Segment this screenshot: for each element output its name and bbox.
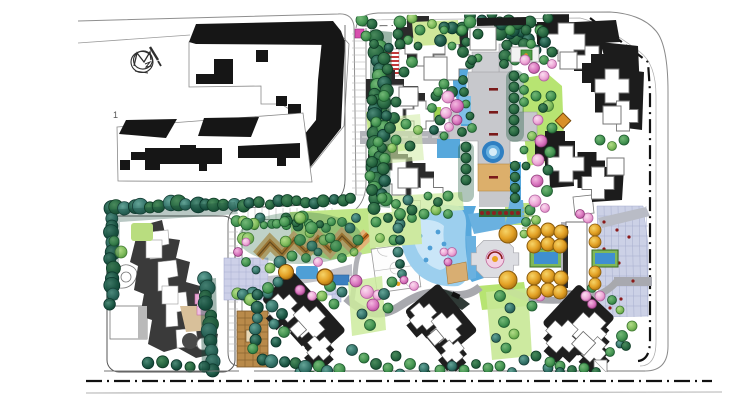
svg-text:1: 1: [113, 110, 118, 120]
